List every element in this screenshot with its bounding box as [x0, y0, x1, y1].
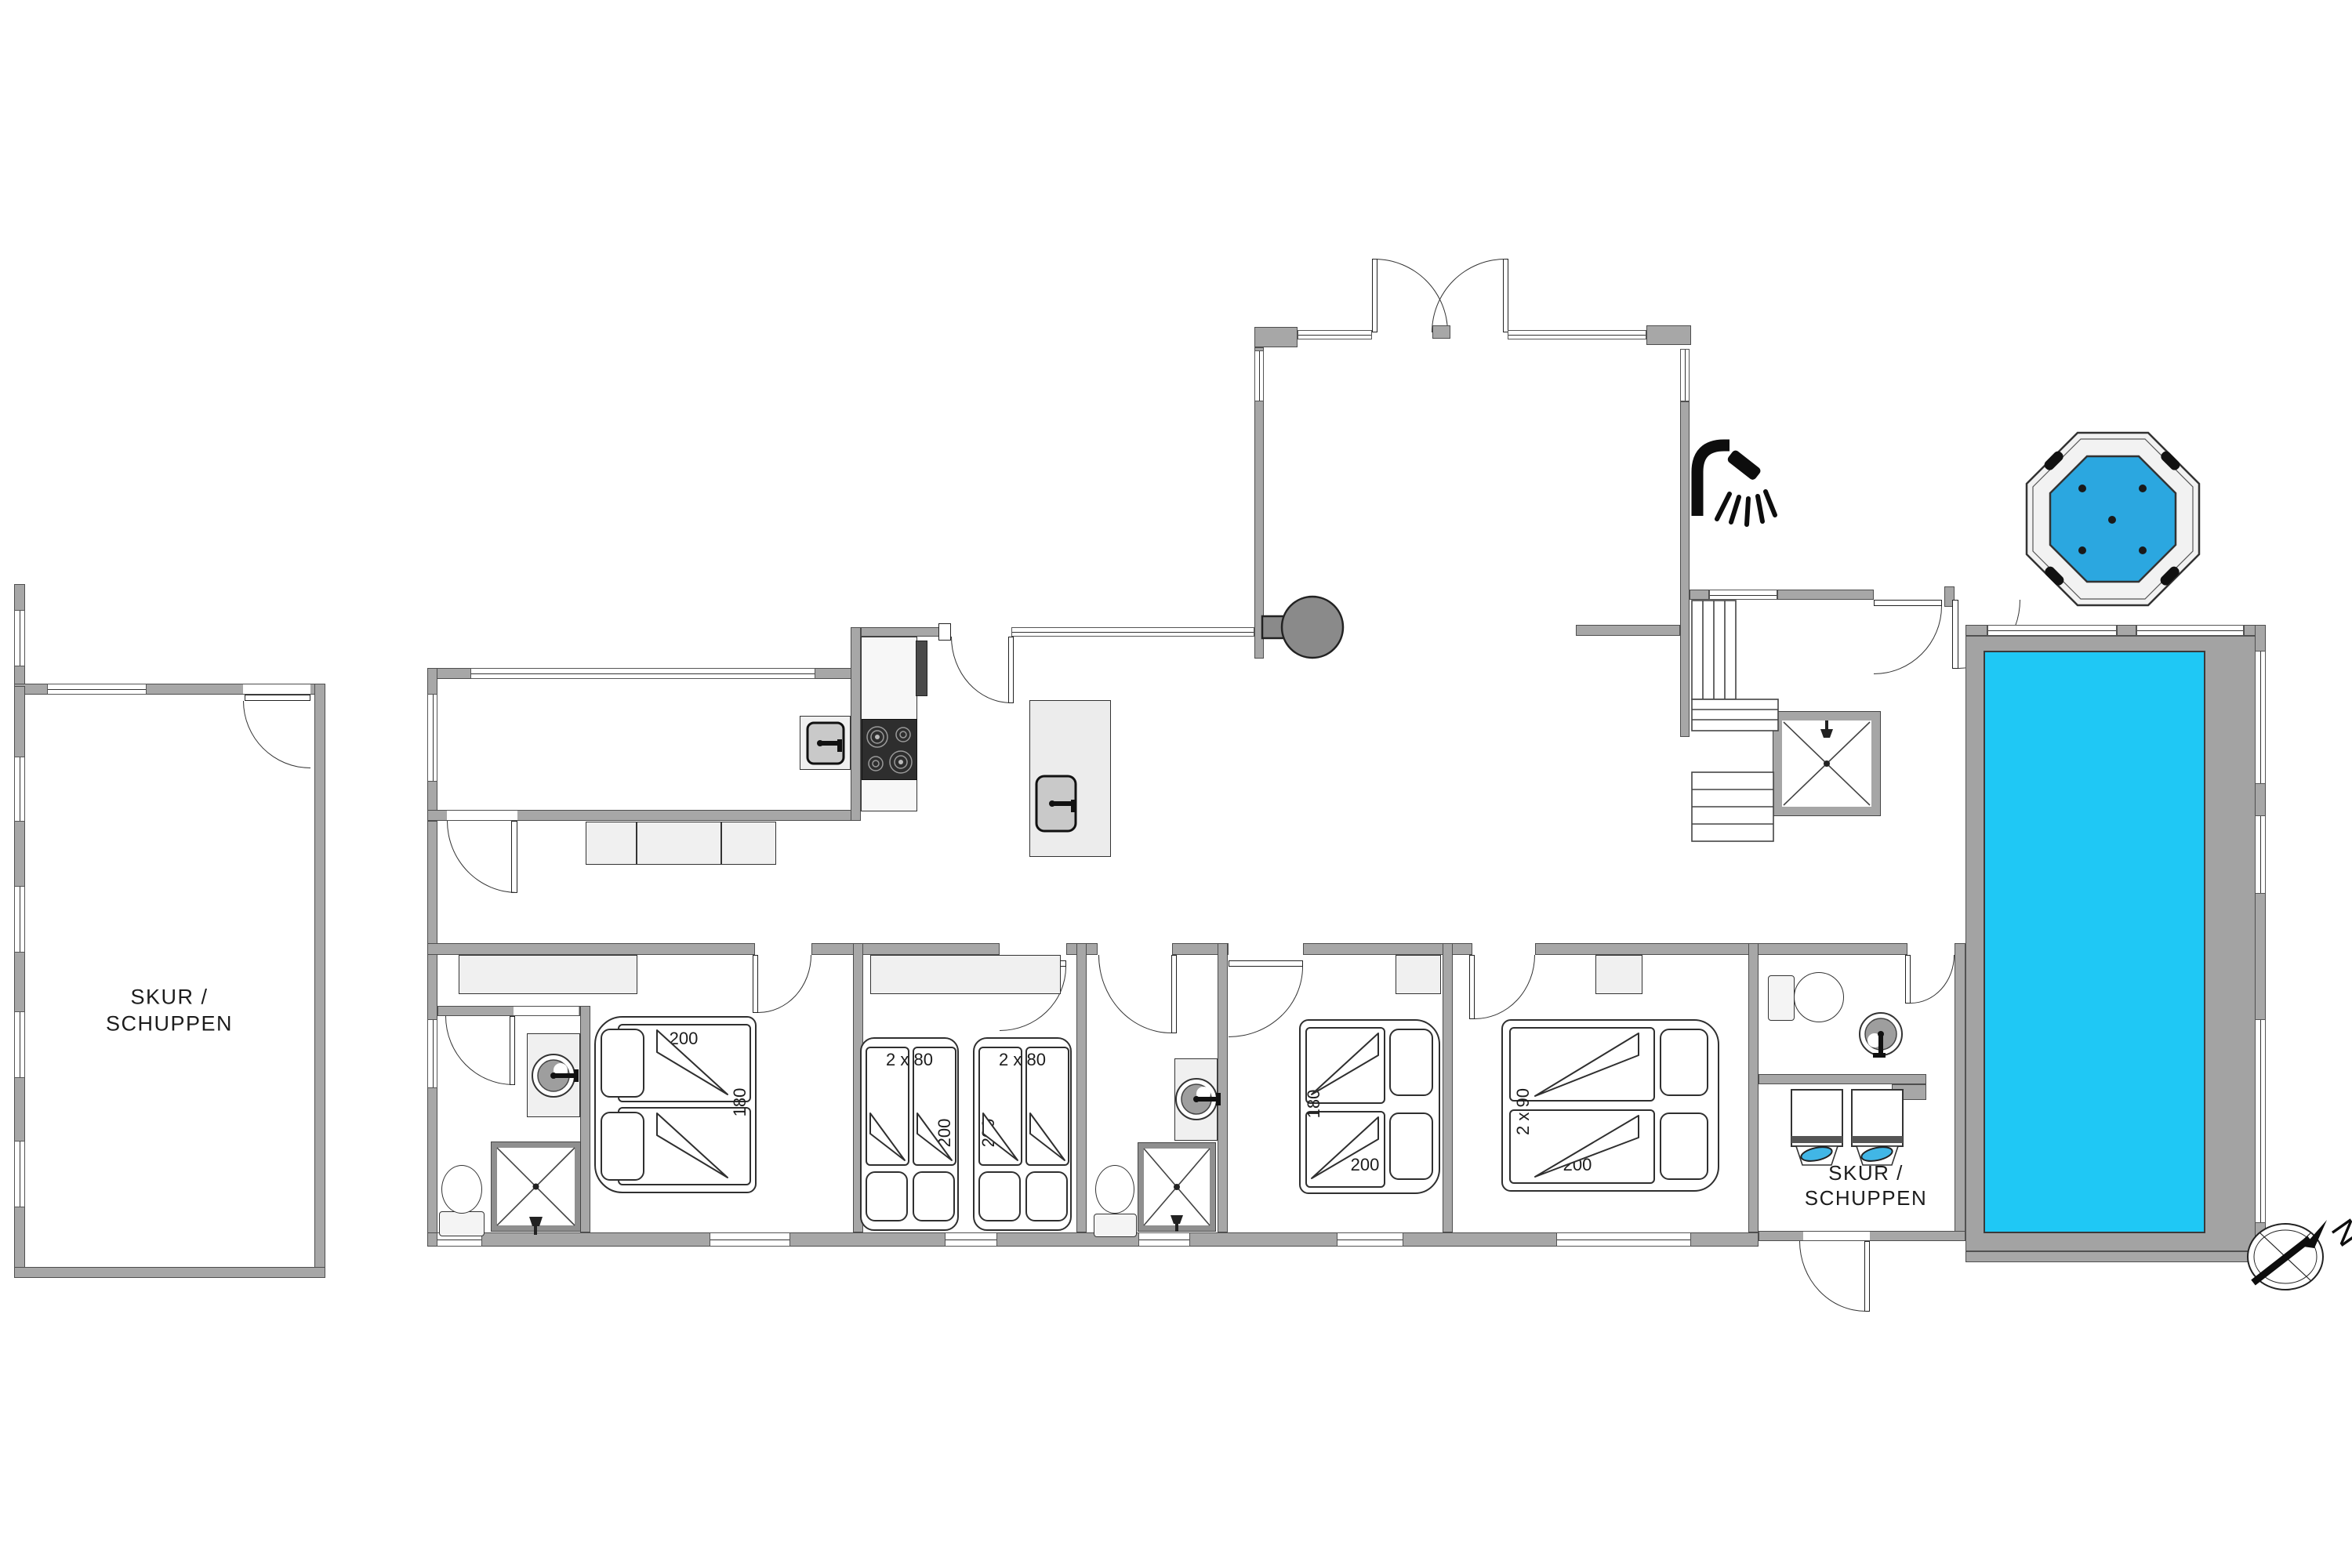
closet — [870, 955, 1061, 994]
pillow — [1025, 1171, 1068, 1221]
closet — [459, 955, 637, 994]
bed-size-label: 2 x 80 — [886, 1050, 933, 1070]
toilet-tank — [439, 1211, 485, 1236]
window — [1709, 590, 1777, 600]
pool-shower-cubicle — [1773, 712, 1880, 815]
bed-size-label: 180 — [730, 1088, 750, 1117]
pillow — [601, 1029, 644, 1098]
wall — [2117, 625, 2136, 636]
door-swing-arc — [1432, 259, 1505, 332]
kitchen-island — [1029, 700, 1111, 857]
closet — [586, 822, 637, 865]
room-label-shed-left-2: SCHUPPEN — [106, 1010, 233, 1037]
door-leaf — [753, 955, 758, 1013]
wall — [1076, 943, 1087, 1232]
washing-machines — [1791, 1090, 1903, 1165]
floor-plan: SKUR / SCHUPPEN — [0, 0, 2352, 1568]
toilet-bowl — [1095, 1165, 1134, 1214]
cooktop — [862, 719, 917, 780]
wall — [1254, 327, 1298, 347]
hot-tub-icon — [2027, 433, 2199, 605]
bed-size-label: 180 — [1304, 1090, 1324, 1119]
wall — [811, 943, 1000, 955]
bed-size-label: 200 — [670, 1029, 699, 1049]
window — [2136, 625, 2244, 636]
wood-stove-icon — [1262, 597, 1343, 658]
door-leaf — [1874, 600, 1942, 606]
closet — [721, 822, 776, 865]
wall — [1965, 1251, 2266, 1262]
shower — [1138, 1143, 1215, 1231]
shower — [492, 1142, 580, 1231]
window — [427, 1019, 437, 1088]
door-swing-arc — [1475, 955, 1535, 1019]
window — [1011, 627, 1254, 637]
door-swing-arc — [951, 637, 1011, 703]
window — [47, 684, 147, 695]
wall — [1576, 625, 1680, 636]
wall — [1680, 401, 1690, 737]
door-swing-arc — [243, 701, 310, 768]
door-leaf — [1952, 600, 1958, 669]
outdoor-shower-icon — [1697, 445, 1775, 524]
window — [1298, 330, 1372, 339]
door-swing-arc — [447, 821, 517, 893]
bed-size-label: 2 x 80 — [999, 1050, 1046, 1070]
door-swing-arc — [1911, 955, 1955, 1004]
wall — [580, 1006, 590, 1232]
door-opening — [1803, 1232, 1870, 1240]
pillow — [1660, 1029, 1708, 1096]
swimming-pool — [1984, 651, 2205, 1233]
pillow — [1660, 1112, 1708, 1180]
door-swing-arc — [1799, 1241, 1866, 1312]
wall — [1443, 943, 1453, 1232]
bed-size-label: 200 — [978, 1119, 999, 1148]
bed-size-label: 200 — [935, 1119, 955, 1148]
bed-size-label: 200 — [1563, 1155, 1592, 1175]
wall — [1535, 943, 1907, 955]
pillow — [866, 1171, 908, 1221]
door-opening — [447, 811, 517, 820]
door-swing-arc — [1874, 606, 1942, 674]
pillow — [978, 1171, 1021, 1221]
window — [1138, 1232, 1190, 1247]
window — [1508, 330, 1646, 339]
wall — [14, 1267, 325, 1278]
window — [1556, 1232, 1691, 1247]
wall — [1690, 590, 1709, 600]
door-leaf — [245, 695, 310, 701]
pillow — [601, 1112, 644, 1181]
window — [1254, 350, 1264, 401]
wall — [1777, 590, 1874, 600]
built-in-oven — [916, 641, 927, 696]
closet — [1396, 955, 1441, 994]
closet — [637, 822, 721, 865]
wall — [427, 943, 755, 955]
door-jamb — [938, 623, 951, 641]
wall — [1955, 943, 1965, 1241]
window — [14, 1141, 25, 1207]
window — [427, 694, 437, 782]
door-leaf — [1171, 955, 1177, 1033]
window — [710, 1232, 790, 1247]
door-leaf — [1469, 955, 1475, 1019]
compass-north-label: N — [2325, 1212, 2352, 1253]
wall — [1646, 325, 1691, 345]
pillow — [1389, 1029, 1433, 1096]
toilet-bowl — [441, 1165, 482, 1214]
toilet-tank — [1768, 975, 1795, 1021]
door-opening — [243, 684, 310, 694]
closet — [1595, 955, 1642, 994]
wall — [1759, 1074, 1926, 1084]
window — [945, 1232, 997, 1247]
window — [1680, 349, 1690, 401]
window — [1987, 625, 2117, 636]
toilet-bowl — [1794, 972, 1844, 1022]
wall — [861, 627, 941, 637]
wall — [1965, 625, 1987, 636]
wall — [1892, 1084, 1926, 1100]
window — [2255, 651, 2266, 784]
window — [14, 886, 25, 953]
window — [14, 1011, 25, 1078]
wall — [314, 684, 325, 1278]
door-swing-arc — [1229, 967, 1303, 1037]
door-leaf — [1229, 960, 1303, 967]
door-swing-arc — [1098, 955, 1171, 1033]
window — [470, 668, 815, 679]
toilet-tank — [1094, 1214, 1137, 1237]
window — [14, 610, 25, 666]
pillow — [1389, 1112, 1433, 1180]
mattress — [1305, 1111, 1385, 1188]
window — [1337, 1232, 1403, 1247]
bed-size-label: 2 x 90 — [1513, 1088, 1534, 1135]
pillow — [913, 1171, 955, 1221]
wall — [1748, 943, 1759, 1232]
stairs — [1692, 601, 1778, 841]
window — [14, 757, 25, 822]
wall — [851, 627, 861, 821]
window — [2255, 1019, 2266, 1223]
window — [2255, 815, 2266, 894]
washbasin-counter — [1174, 1058, 1218, 1141]
room-label-shed-right: SKUR / — [1828, 1160, 1904, 1187]
door-swing-arc — [445, 1016, 514, 1085]
door-swing-arc — [758, 955, 811, 1013]
bed-size-label: 200 — [1351, 1155, 1380, 1175]
door-leaf — [1905, 955, 1911, 1004]
room-label-shed-right-2: SCHUPPEN — [1805, 1185, 1927, 1212]
washbasin-counter — [527, 1033, 580, 1117]
door-opening — [514, 1007, 579, 1015]
wall — [1218, 943, 1228, 1232]
kitchen-sink-counter — [800, 716, 851, 770]
room-label-shed-left: SKUR / — [130, 983, 208, 1011]
